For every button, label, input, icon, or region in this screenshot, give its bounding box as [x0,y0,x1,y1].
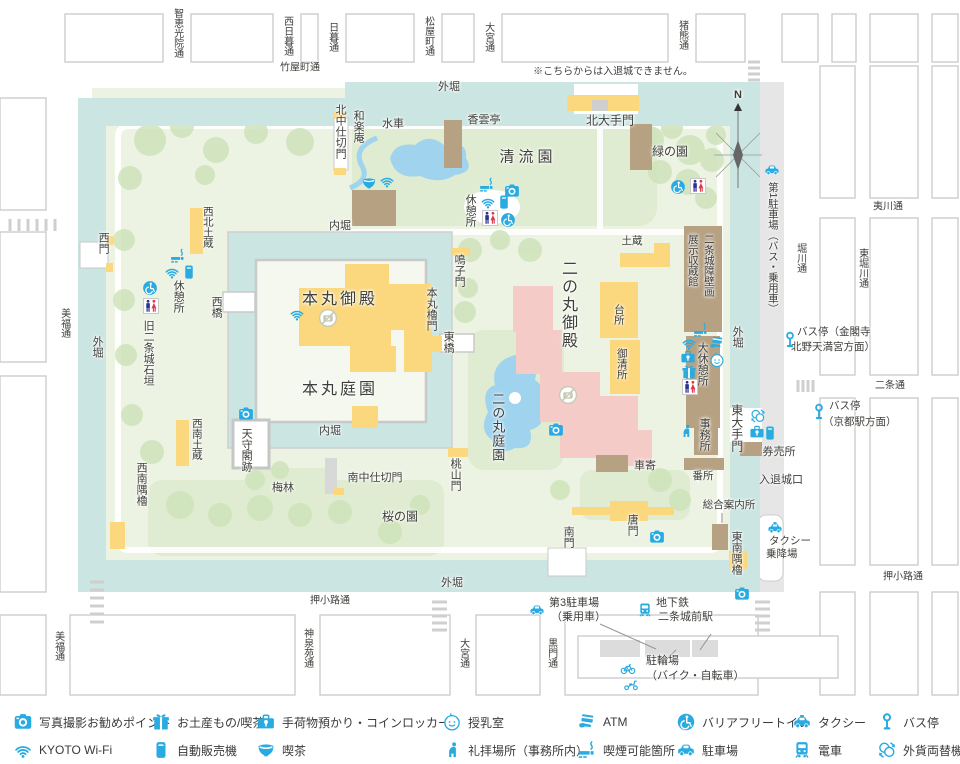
legend-item: 駐車場 [677,740,738,760]
legend-item: タクシー [793,712,866,732]
legend-label: 喫茶 [282,742,306,759]
bus-icon [811,404,828,421]
camera-icon [650,530,665,545]
scooter-icon [624,677,639,692]
wifi-icon [682,336,697,351]
smoking-icon [171,249,186,264]
legend-label: バス停 [903,714,939,731]
vending-icon [182,265,197,280]
train-icon [638,603,653,618]
legend-label: タクシー [818,714,866,731]
nijo-castle-map: 智恵光院通西日暮通日暮通松屋町通大宮通猪熊通竹屋町通※こちらからは入退城できませ… [0,0,960,764]
camera-icon [735,587,750,602]
locker-icon [257,713,275,731]
smoking-icon [480,178,495,193]
train-icon [793,741,811,759]
vending-icon [497,195,512,210]
legend-item: 写真撮影お勧めポイント [14,712,171,732]
accessible-icon [677,713,695,731]
legend-label: 喫煙可能箇所 [603,742,675,759]
legend-label: 電車 [818,742,842,759]
legend-item: 礼拝場所（事務所内） [443,740,588,760]
legend-label: 自動販売機 [177,742,237,759]
exchange-icon [751,409,766,424]
legend-item: 喫茶 [257,740,306,760]
legend-label: 礼拝場所（事務所内） [468,742,588,759]
legend-label: 駐車場 [702,742,738,759]
legend-item: バス停 [878,712,939,732]
smoking-icon [578,741,596,759]
accessible-icon [671,180,686,195]
atm-icon [578,713,596,731]
legend-item: バリアフリートイレ [677,712,810,732]
baby-icon [443,713,461,731]
wifi-icon [290,307,305,322]
tea-icon [362,176,377,191]
camera-icon [549,423,564,438]
toilets-icon [682,379,698,395]
legend-label: KYOTO Wi-Fi [39,743,112,757]
nophoto-icon [319,309,338,328]
toilets-icon [690,178,706,194]
smoking-icon [694,323,709,338]
accessible-icon [143,281,158,296]
car-icon [530,603,545,618]
locker-icon [750,425,765,440]
locker-icon [681,350,696,365]
legend-item: 喫煙可能箇所 [578,740,675,760]
accessible-icon [501,213,516,228]
legend-label: お土産もの/喫茶 [177,714,264,731]
gift-icon [682,365,697,380]
vending-icon [152,741,170,759]
wifi-icon [380,174,395,189]
car-icon [677,741,695,759]
gift-icon [152,713,170,731]
legend-label: 外貨両替機 [903,742,960,759]
tea-icon [257,741,275,759]
legend: 写真撮影お勧めポイントお土産もの/喫茶手荷物預かり・コインロッカー授乳室ATMバ… [0,700,960,764]
legend-item: 手荷物預かり・コインロッカー [257,712,450,732]
legend-label: 授乳室 [468,714,504,731]
exchange-icon [878,741,896,759]
taxi-icon [768,521,783,536]
car-icon [765,163,780,178]
legend-item: ATM [578,712,627,732]
wifi-icon [481,195,496,210]
camera-icon [239,407,254,422]
wifi-icon [165,265,180,280]
prayer-icon [679,424,694,439]
baby-icon [710,353,725,368]
legend-item: 外貨両替機 [878,740,960,760]
legend-item: 授乳室 [443,712,504,732]
taxi-icon [793,713,811,731]
legend-item: KYOTO Wi-Fi [14,740,112,760]
bus-icon [878,713,896,731]
bicycle-icon [621,661,636,676]
toilets-icon [143,298,159,314]
nophoto-icon [559,386,578,405]
camera-icon [14,713,32,731]
atm-icon [710,336,725,351]
legend-label: ATM [603,715,627,729]
toilets-icon [482,210,498,226]
legend-item: 電車 [793,740,842,760]
wifi-icon [14,741,32,759]
legend-item: 自動販売機 [152,740,237,760]
map-icons-layer [0,0,960,700]
prayer-icon [443,741,461,759]
legend-label: 手荷物預かり・コインロッカー [282,714,450,731]
bus-icon [782,332,799,349]
vending-icon [763,426,778,441]
legend-item: お土産もの/喫茶 [152,712,264,732]
